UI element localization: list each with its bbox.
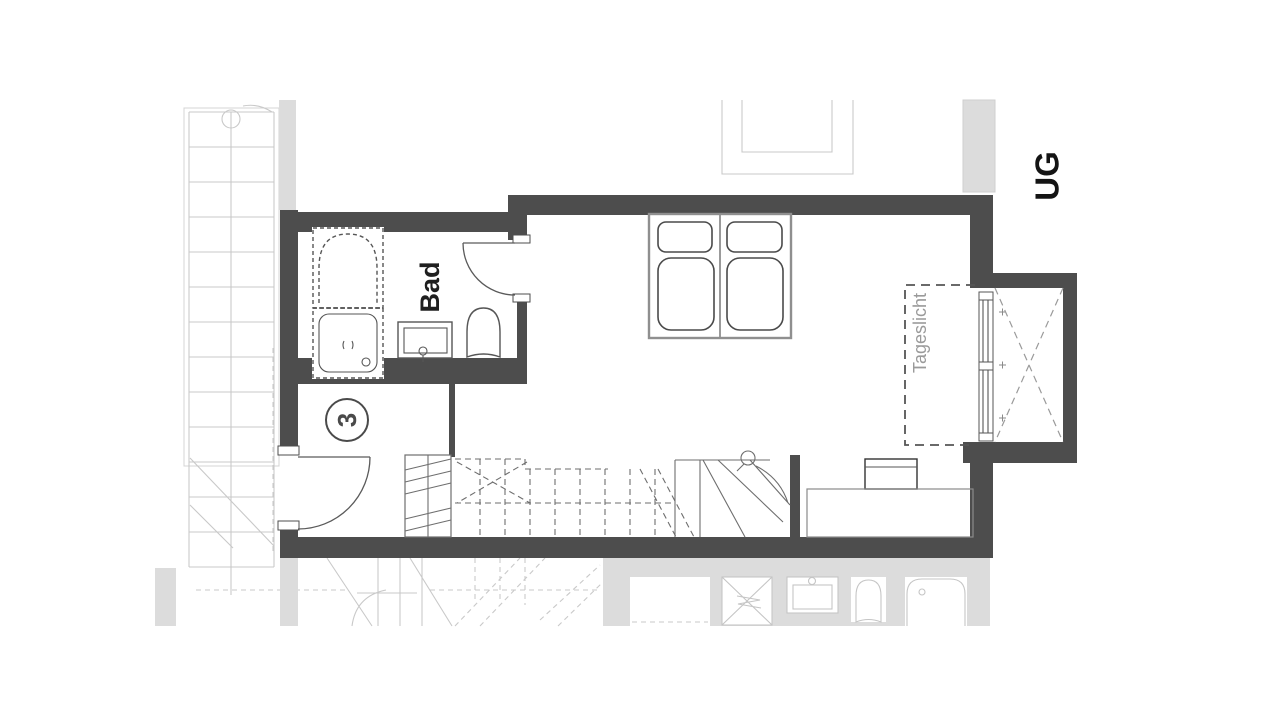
neighbor-unit-bottom [155, 558, 990, 626]
floor-area-outline [807, 489, 973, 537]
window [979, 292, 1006, 441]
wall-shaft-top [970, 273, 1077, 288]
bathroom-door-swing [463, 243, 515, 295]
door-sill [513, 235, 530, 243]
wall-interior-thin [449, 384, 455, 457]
wall-left-upper [280, 210, 298, 455]
bathroom-fixtures [312, 227, 500, 379]
winder-steps [675, 451, 790, 537]
unit-number-badge: 3 [326, 399, 368, 441]
wall-main-top [508, 195, 993, 215]
daylight-label: Tageslicht [910, 293, 930, 373]
wall-shaft-right [1063, 273, 1077, 463]
double-bed [649, 214, 791, 338]
toilet [467, 308, 500, 357]
unit-number-label: 3 [332, 413, 362, 427]
wall-bottom [280, 537, 993, 558]
wall-stair-right [790, 455, 800, 537]
washbasin [398, 322, 452, 362]
sideboard [865, 459, 917, 489]
door-sill [513, 294, 530, 302]
wall-bath-door-stub [517, 302, 527, 384]
bathroom-label: Bad [415, 261, 445, 312]
floorplan-canvas: 3 Bad Tageslicht UG [0, 0, 1280, 720]
furniture [807, 459, 973, 537]
neighbor-wall-strip [279, 100, 296, 210]
neighbor-pillar-top [963, 100, 995, 192]
door-sill [278, 446, 299, 455]
neighbor-stair-lines [327, 558, 603, 626]
floor-label: UG [1029, 151, 1066, 201]
door-sill [278, 521, 299, 530]
staircase [405, 451, 790, 537]
entrance-door-swing [298, 457, 370, 529]
neighbor-void-outline [722, 100, 853, 174]
